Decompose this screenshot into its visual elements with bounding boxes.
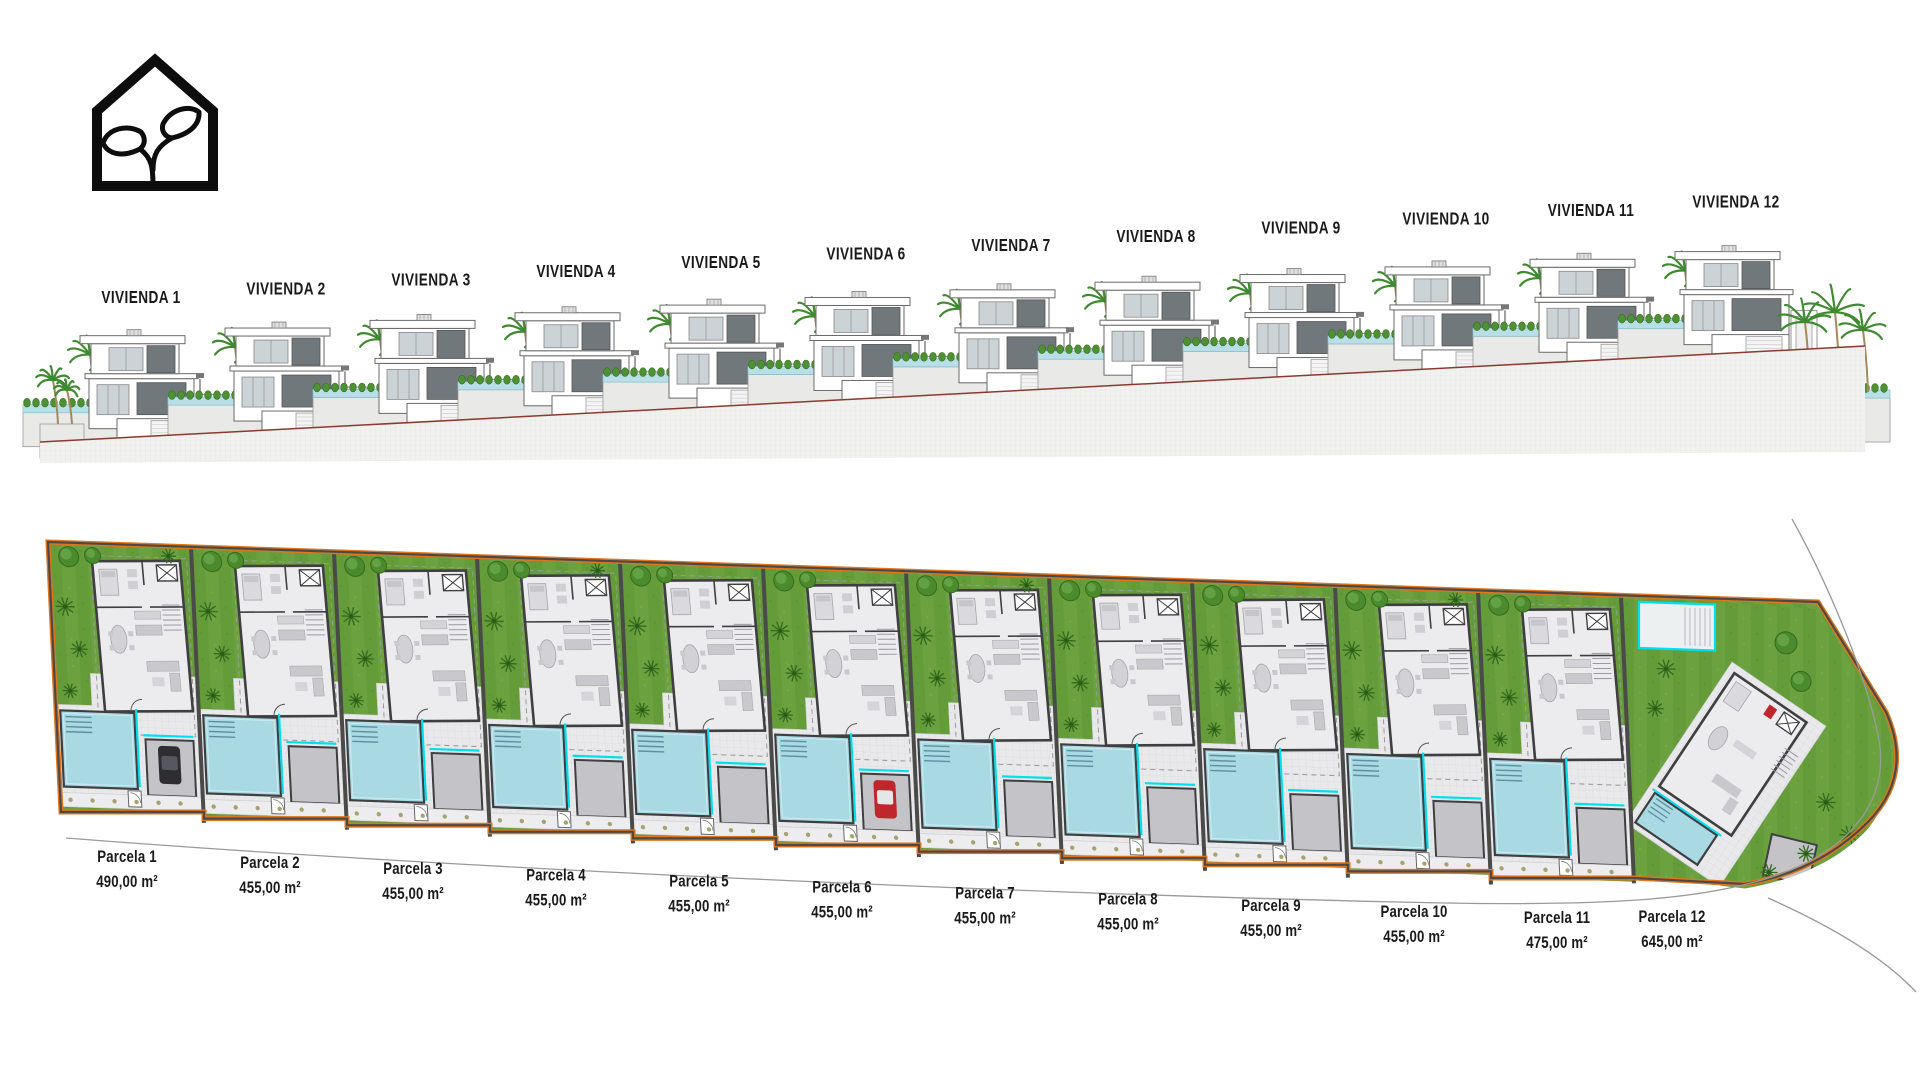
parcela-label: Parcela 2: [240, 854, 299, 873]
house-floorplan: [664, 580, 765, 731]
house-floorplan: [92, 561, 193, 712]
parcela-area: 455,00 m²: [1097, 915, 1159, 934]
parcel: [906, 571, 1063, 854]
parcela-area: 490,00 m²: [96, 873, 158, 892]
parcela-label: Parcela 5: [669, 872, 728, 891]
vivienda-label: VIVIENDA 11: [1548, 202, 1634, 221]
parcela-label: Parcela 8: [1098, 890, 1157, 909]
architectural-sheet: VIVIENDA 1VIVIENDA 2VIVIENDA 3VIVIENDA 4…: [0, 0, 1920, 1080]
vivienda-label: VIVIENDA 10: [1402, 210, 1489, 229]
parcela-area: 455,00 m²: [954, 909, 1016, 928]
vivienda-label: VIVIENDA 1: [101, 289, 180, 308]
house-floorplan: [1236, 600, 1337, 751]
elevation-view: VIVIENDA 1VIVIENDA 2VIVIENDA 3VIVIENDA 4…: [0, 0, 1920, 500]
parcel-12: [1621, 590, 1911, 900]
parcela-label: Parcela 7: [955, 884, 1014, 903]
road-edge-line-2: [1768, 898, 1916, 992]
vivienda-label: VIVIENDA 7: [971, 236, 1050, 255]
parcela-label: Parcela 3: [383, 860, 442, 879]
house-floorplan: [378, 571, 479, 722]
parcela-area: 455,00 m²: [1383, 928, 1445, 947]
vivienda-label: VIVIENDA 4: [536, 262, 615, 281]
parcela-area: 455,00 m²: [239, 879, 301, 898]
house-floorplan: [1379, 604, 1480, 755]
parcel: [1049, 576, 1206, 861]
parcela-area: 455,00 m²: [525, 891, 587, 910]
vivienda-label: VIVIENDA 9: [1261, 219, 1340, 238]
parcel: [334, 552, 490, 827]
house-floorplan: [1093, 595, 1194, 746]
house-floorplan: [235, 566, 336, 717]
parcela-label: Parcela 11: [1524, 909, 1590, 928]
vivienda-label: VIVIENDA 6: [826, 245, 905, 264]
parcela-area: 455,00 m²: [668, 897, 730, 916]
parcel: [477, 557, 633, 834]
vivienda-label: VIVIENDA 8: [1116, 228, 1195, 247]
vivienda-label: VIVIENDA 2: [246, 280, 325, 299]
vivienda-label: VIVIENDA 3: [391, 271, 470, 290]
vivienda-label: VIVIENDA 12: [1692, 193, 1779, 212]
parcel: [620, 561, 776, 840]
parcela-label: Parcela 4: [526, 866, 586, 885]
parcela-area: 475,00 m²: [1526, 934, 1588, 953]
parcela-label: Parcela 12: [1639, 908, 1706, 927]
parcela-area: 455,00 m²: [811, 903, 873, 922]
parcel: [1335, 586, 1492, 875]
parcel: [1192, 581, 1349, 868]
parcel: [763, 566, 919, 847]
parcel: [1478, 590, 1635, 881]
parcela-label: Parcela 6: [812, 878, 871, 897]
parcela-area: 455,00 m²: [1240, 921, 1302, 940]
parcela-area: 645,00 m²: [1641, 933, 1703, 952]
parcela-label: Parcela 9: [1241, 896, 1300, 915]
vivienda-label: VIVIENDA 5: [681, 254, 760, 273]
elevation-labels: VIVIENDA 1VIVIENDA 2VIVIENDA 3VIVIENDA 4…: [101, 193, 1779, 308]
site-plan-view: Parcela 1490,00 m²Parcela 2455,00 m²Parc…: [0, 500, 1920, 1080]
parcela-label: Parcela 1: [97, 848, 156, 867]
parcel: [191, 547, 347, 820]
parcela-label: Parcela 10: [1381, 903, 1448, 922]
house-floorplan: [521, 575, 622, 726]
house-floorplan: [807, 585, 908, 736]
house-floorplan: [950, 590, 1051, 741]
parcel: [48, 542, 204, 813]
parcela-area: 455,00 m²: [382, 885, 444, 904]
house-floorplan: [1522, 609, 1623, 760]
